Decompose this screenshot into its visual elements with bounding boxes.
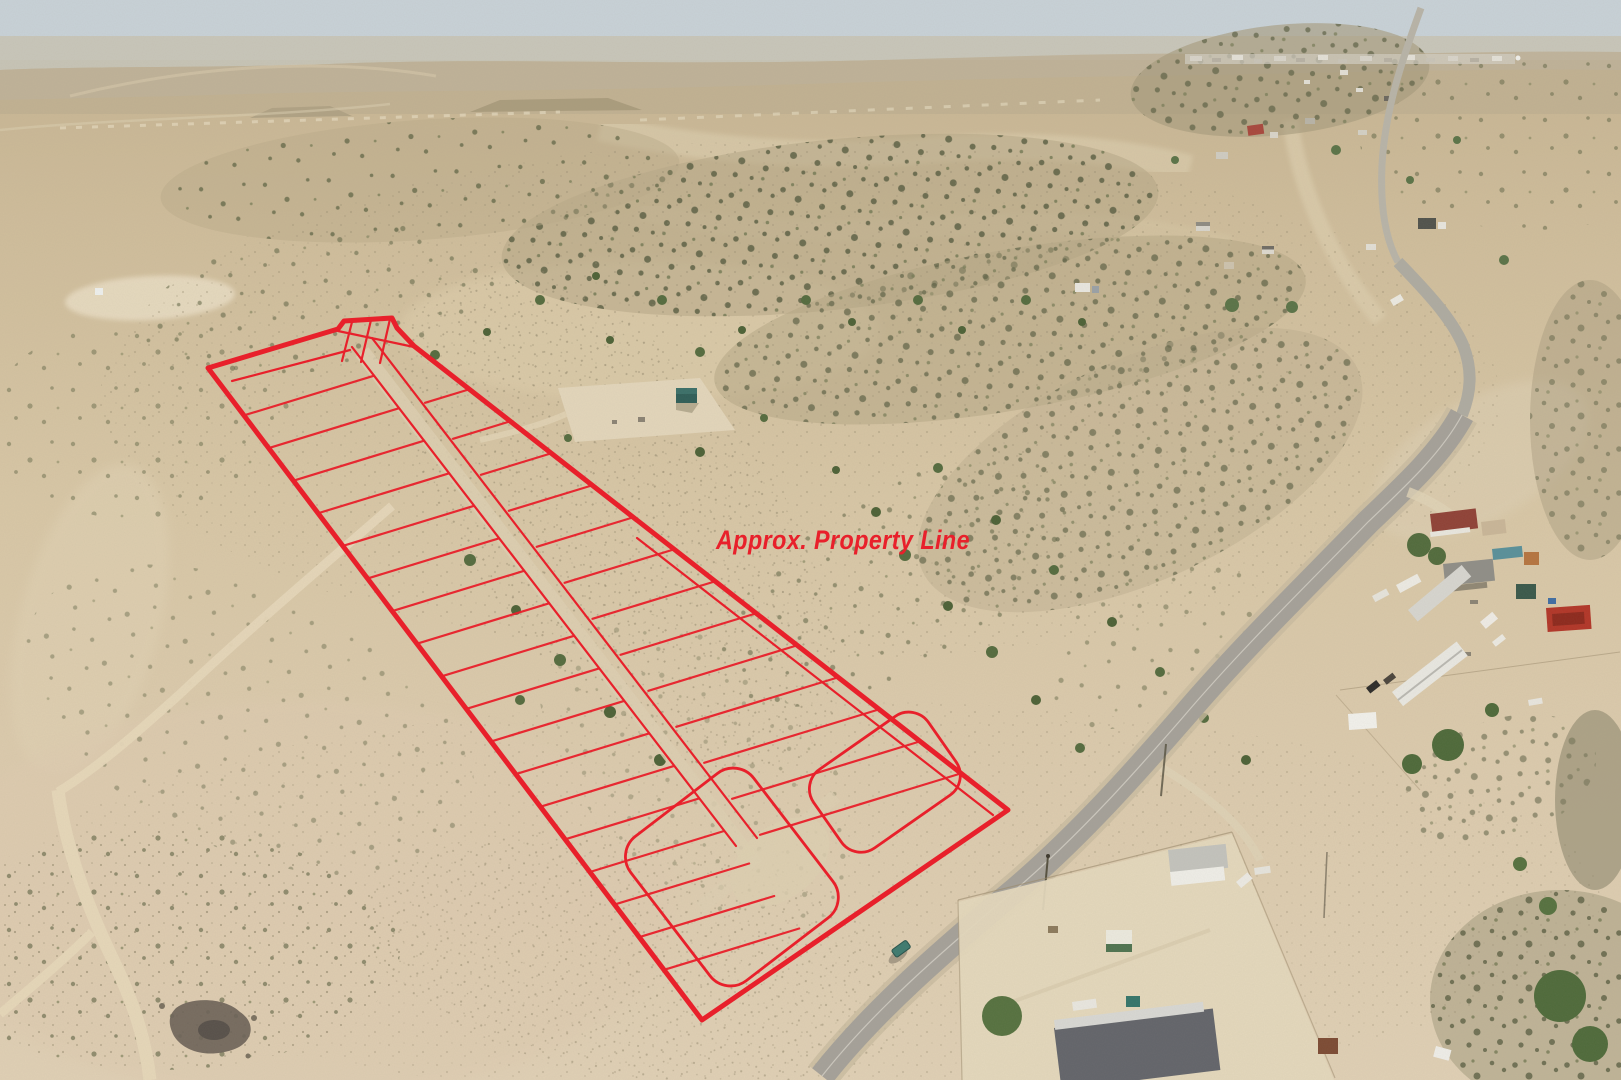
photo-grain [0,36,1621,1080]
aerial-photo: Approx. Property Line [0,0,1621,1080]
property-line-label: Approx. Property Line [715,525,970,555]
